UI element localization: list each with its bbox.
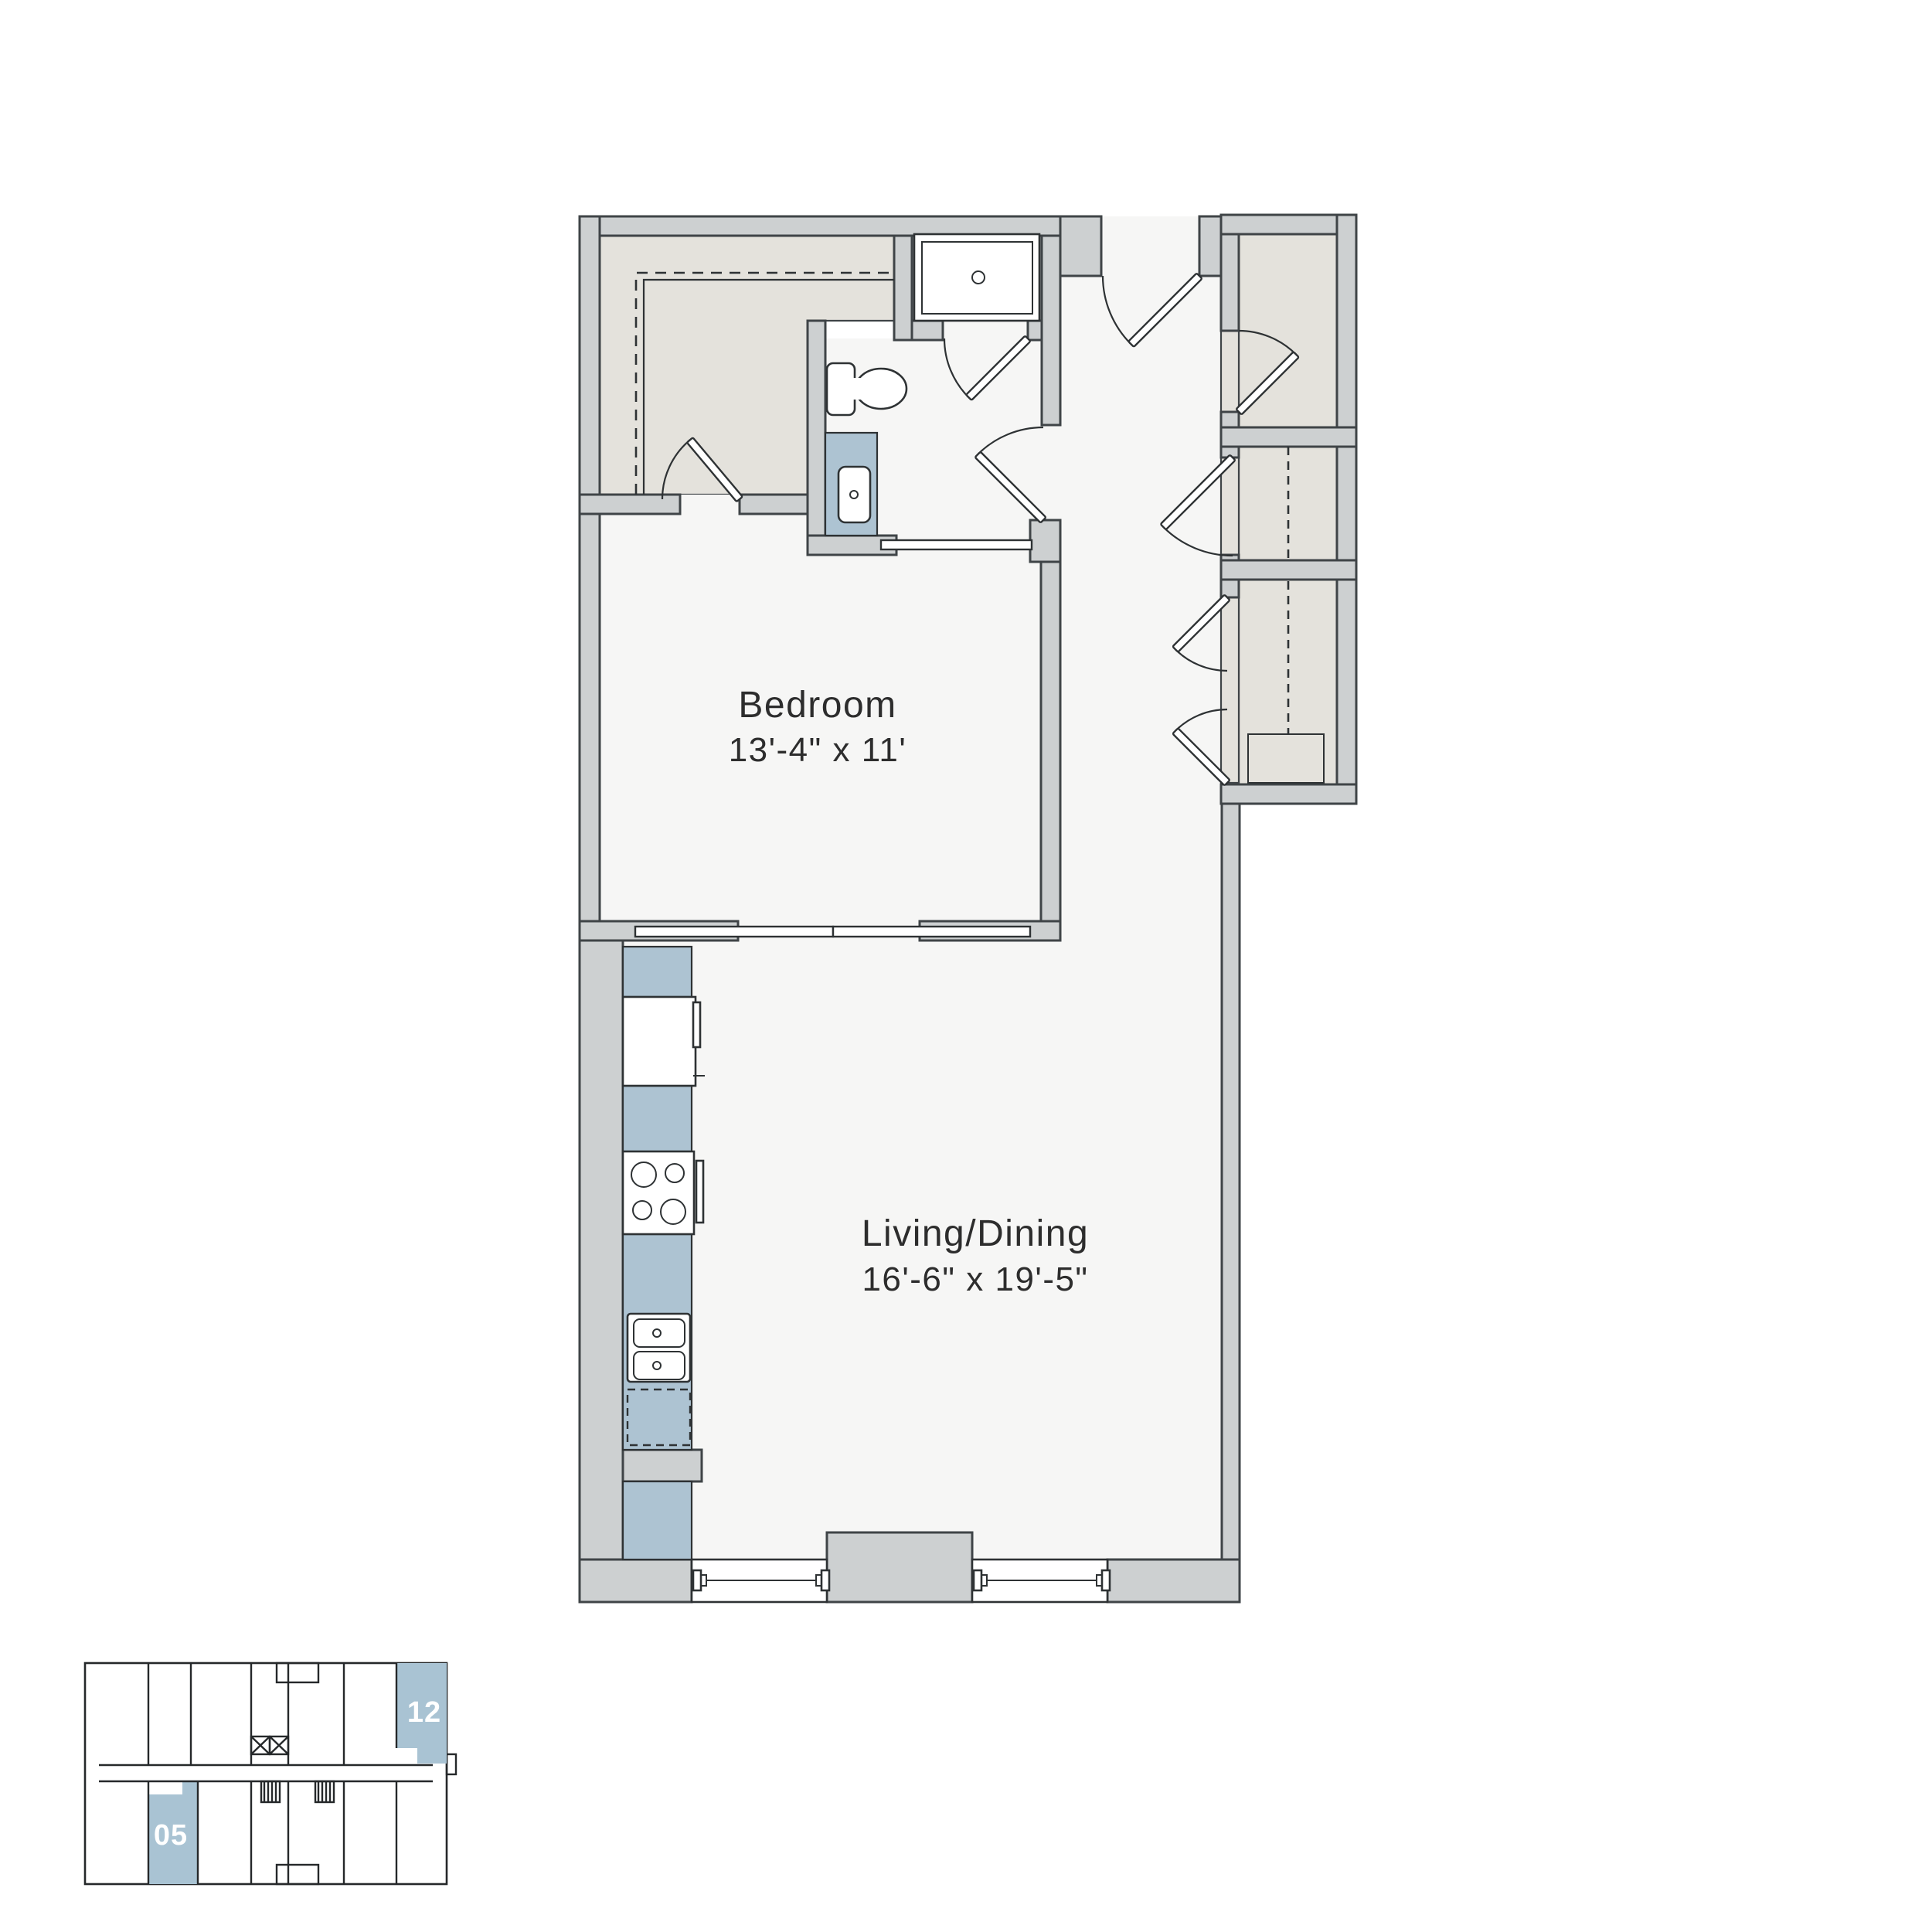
entry-jamb-left (1060, 216, 1101, 276)
keyplan-outline (85, 1663, 447, 1884)
wall-bottom-right (1107, 1560, 1240, 1602)
entry-jamb-right (1199, 216, 1223, 276)
kitchen-sink (628, 1314, 690, 1382)
window-left (692, 1560, 829, 1602)
keyplan-unit-12-label: 12 (407, 1696, 441, 1729)
floor-plan-page: Bedroom 13'-4" x 11' Living/Dining 16'-6… (0, 0, 1932, 1932)
wall-wic-south-left (580, 495, 680, 514)
sliding-door-right (833, 927, 1030, 937)
wall-shower-south-right (1028, 321, 1042, 340)
closet-divider-1 (1221, 427, 1356, 447)
closet-block-right (1337, 215, 1356, 804)
closet-bottom-threshold (1221, 597, 1239, 783)
keyplan-unit-05-label: 05 (154, 1819, 188, 1852)
wall-west-thick (580, 921, 623, 1602)
wall-bath-east (1042, 236, 1060, 425)
living-label: Living/Dining (862, 1213, 1089, 1254)
counter-1 (623, 947, 692, 997)
shower (914, 234, 1039, 321)
keyplan-right-bump (447, 1754, 456, 1774)
living-dims: 16'-6" x 19'-5" (862, 1260, 1088, 1298)
counter-4 (623, 1481, 692, 1560)
counter-2 (623, 1086, 692, 1151)
bath-threshold (1041, 425, 1060, 520)
range (623, 1151, 703, 1234)
entry-threshold (1101, 216, 1199, 236)
floor-plan-drawing: Bedroom 13'-4" x 11' Living/Dining 16'-6… (0, 0, 1932, 1932)
refrigerator (623, 997, 705, 1086)
wall-west-thin (580, 216, 600, 921)
key-plan: 12 05 (85, 1663, 456, 1884)
wall-shower-west (894, 236, 912, 340)
window-pier (827, 1532, 972, 1602)
closet-bottom-floor (1239, 580, 1337, 784)
bedroom-dims: 13'-4" x 11' (729, 731, 907, 769)
bedroom-label: Bedroom (738, 685, 896, 726)
sliding-door-left (635, 927, 833, 937)
wall-corridor-west (1041, 562, 1060, 940)
wall-wic-bath (808, 321, 825, 536)
closet-block-bottom (1221, 784, 1356, 804)
closet-top-threshold (1221, 331, 1239, 412)
wall-east (1222, 784, 1240, 1602)
wall-shower-south-left (912, 321, 943, 340)
wall-bath-stub (1030, 520, 1060, 562)
wall-top (580, 216, 1061, 236)
wall-wic-south-right (740, 495, 808, 514)
pocket-door (881, 540, 1032, 549)
wall-bottom-left (580, 1560, 692, 1602)
closet-west-1 (1221, 234, 1239, 331)
vanity-sink (825, 433, 877, 536)
window-right (972, 1560, 1110, 1602)
kitchen-stub-wall (623, 1450, 702, 1481)
wic-threshold (680, 495, 740, 514)
closet-divider-2 (1221, 560, 1356, 580)
